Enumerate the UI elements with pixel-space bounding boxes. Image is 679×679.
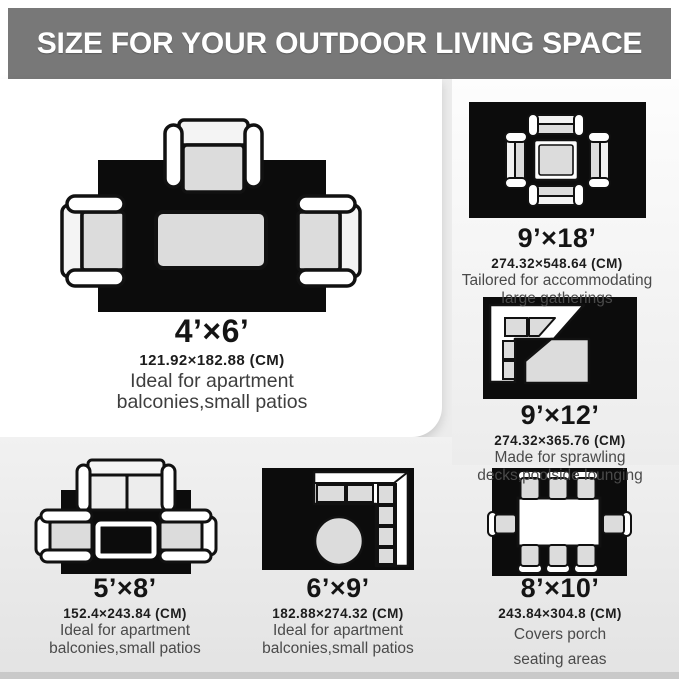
armchair-right-icon bbox=[298, 196, 360, 286]
page-title: SIZE FOR YOUR OUTDOOR LIVING SPACE bbox=[37, 27, 642, 61]
size-label-4x6: 4’×6’ bbox=[46, 312, 378, 350]
description-6x9-line1: Ideal for apartment bbox=[233, 622, 443, 640]
dining-chair-left-icon bbox=[488, 512, 516, 536]
infographic-page: SIZE FOR YOUR OUTDOOR LIVING SPACE bbox=[0, 0, 679, 679]
description-8x10-line1: Covers porch bbox=[455, 622, 665, 647]
panel-8x10-text: 8’×10’ 243.84×304.8 (CM) Covers porch se… bbox=[455, 573, 665, 672]
dining-chair-bottom-2-icon bbox=[546, 545, 570, 573]
description-6x9-line2: balconies,small patios bbox=[233, 640, 443, 658]
size-label-6x9: 6’×9’ bbox=[233, 573, 443, 604]
dining-table-icon bbox=[518, 498, 600, 546]
panel-5x8-text: 5’×8’ 152.4×243.84 (CM) Ideal for apartm… bbox=[20, 573, 230, 658]
armchair-left-icon bbox=[62, 196, 124, 286]
description-8x10-line2: seating areas bbox=[455, 647, 665, 672]
description-9x12-line2: decks,poolside lounging bbox=[455, 467, 665, 485]
bench-chair-left-icon bbox=[505, 132, 527, 188]
description-4x6-line1: Ideal for apartment bbox=[46, 371, 378, 392]
armchair-top-icon bbox=[165, 120, 262, 192]
cm-label-4x6: 121.92×182.88 (CM) bbox=[46, 351, 378, 371]
panel-4x6-text: 4’×6’ 121.92×182.88 (CM) Ideal for apart… bbox=[46, 312, 378, 413]
coffee-table-icon bbox=[156, 212, 266, 268]
size-label-5x8: 5’×8’ bbox=[20, 573, 230, 604]
rug-diagram-5x8 bbox=[28, 458, 224, 588]
description-5x8-line2: balconies,small patios bbox=[20, 640, 230, 658]
size-label-8x10: 8’×10’ bbox=[455, 573, 665, 604]
rug-diagram-4x6 bbox=[50, 96, 380, 322]
description-5x8-line1: Ideal for apartment bbox=[20, 622, 230, 640]
cm-label-9x12: 274.32×365.76 (CM) bbox=[455, 432, 665, 449]
bench-chair-right-icon bbox=[588, 132, 610, 188]
rug-diagram-9x12 bbox=[483, 297, 637, 399]
cm-label-5x8: 152.4×243.84 (CM) bbox=[20, 605, 230, 622]
armchair-right-icon bbox=[160, 510, 216, 562]
armchair-left-icon bbox=[36, 510, 92, 562]
bottom-edge-strip bbox=[0, 672, 679, 679]
description-9x18-line2: large gatherings bbox=[452, 290, 662, 308]
description-9x18-line1: Tailored for accommodating bbox=[452, 272, 662, 290]
square-table-icon bbox=[534, 140, 578, 180]
cm-label-8x10: 243.84×304.8 (CM) bbox=[455, 605, 665, 622]
description-4x6-line2: balconies,small patios bbox=[46, 392, 378, 413]
panel-9x18-text: 9’×18’ 274.32×548.64 (CM) Tailored for a… bbox=[452, 223, 662, 308]
dining-chair-right-icon bbox=[603, 512, 631, 536]
description-9x12-line1: Made for sprawling bbox=[455, 449, 665, 467]
bench-chair-bottom-icon bbox=[528, 184, 584, 206]
round-ottoman-icon bbox=[315, 517, 363, 565]
size-label-9x12: 9’×12’ bbox=[455, 400, 665, 431]
rug-diagram-6x9 bbox=[262, 468, 414, 570]
loveseat-sofa-icon bbox=[77, 460, 175, 511]
cm-label-9x18: 274.32×548.64 (CM) bbox=[452, 255, 662, 272]
size-label-9x18: 9’×18’ bbox=[452, 223, 662, 254]
header-banner: SIZE FOR YOUR OUTDOOR LIVING SPACE bbox=[8, 8, 671, 79]
coffee-table-outline-icon bbox=[98, 524, 154, 556]
dining-chair-bottom-1-icon bbox=[518, 545, 542, 573]
rug-diagram-9x18 bbox=[469, 102, 646, 218]
panel-6x9-text: 6’×9’ 182.88×274.32 (CM) Ideal for apart… bbox=[233, 573, 443, 658]
panel-9x12-text: 9’×12’ 274.32×365.76 (CM) Made for spraw… bbox=[455, 400, 665, 485]
dining-chair-bottom-3-icon bbox=[574, 545, 598, 573]
bench-chair-top-icon bbox=[528, 114, 584, 136]
cm-label-6x9: 182.88×274.32 (CM) bbox=[233, 605, 443, 622]
